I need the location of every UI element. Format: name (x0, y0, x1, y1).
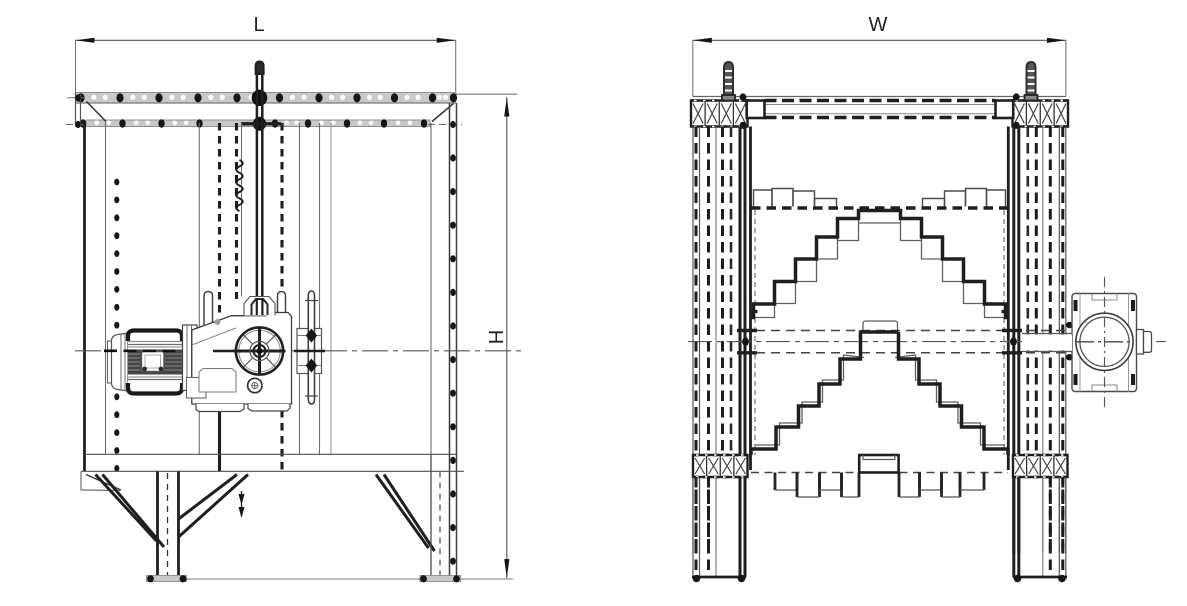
svg-text:H: H (484, 330, 506, 344)
svg-text:L: L (253, 14, 264, 36)
svg-text:W: W (869, 14, 888, 36)
